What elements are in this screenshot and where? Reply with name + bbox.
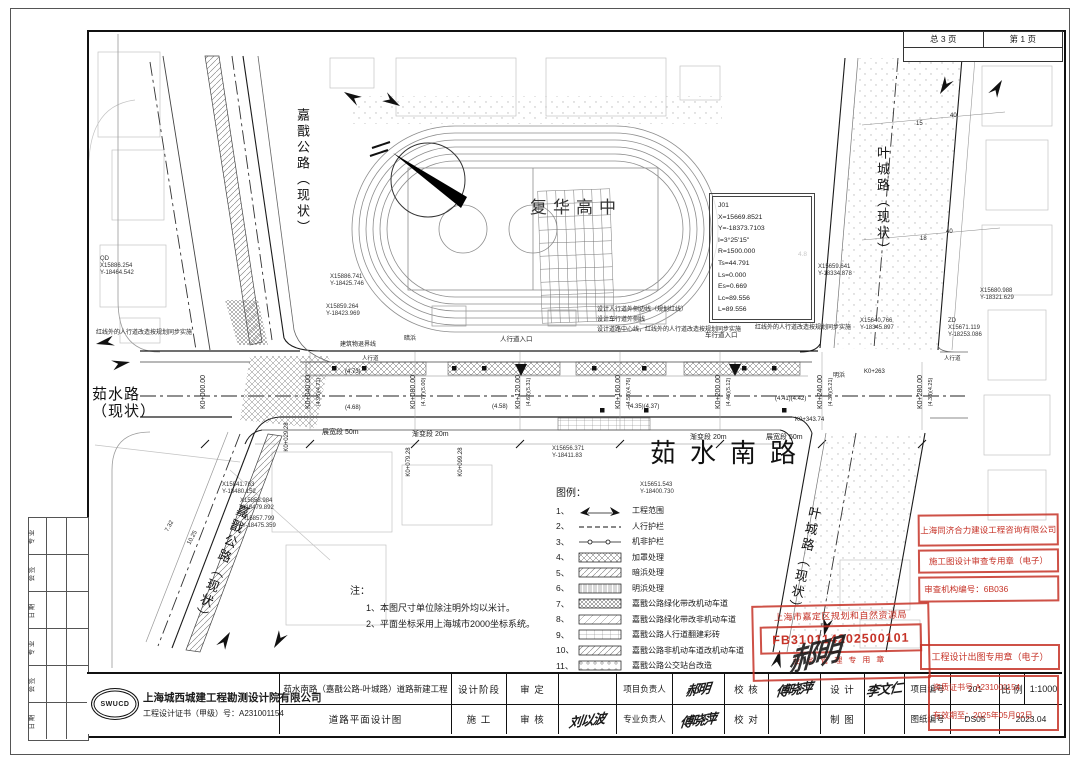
yecheng-road-top — [800, 58, 1005, 418]
legend-label: 嘉戬公路绿化带改非机动车道 — [632, 614, 736, 625]
signoff-label-cell: 日 期 — [29, 703, 47, 739]
sheet-total: 总 3 页 — [904, 32, 984, 47]
signoff-cell — [47, 703, 67, 739]
signoff-label: 日 期 — [25, 715, 35, 730]
road-label-yecheng-top: 叶城路（现状） — [876, 146, 889, 258]
bike-to-lane-swatch — [578, 645, 622, 656]
svg-text:明浜: 明浜 — [833, 371, 845, 379]
legend-label: 嘉戬公路非机动车道改机动车道 — [632, 645, 744, 656]
stage-label: 设计阶段 — [452, 674, 506, 704]
vehicle-rail-swatch-icon — [578, 536, 622, 547]
zyfzr-label: 专业负责人 — [617, 704, 672, 734]
legend-item: 2、人行护栏 — [556, 519, 744, 535]
legend-no: 8、 — [556, 613, 578, 625]
svg-text:人行道: 人行道 — [944, 354, 961, 362]
svg-text:(4.33)(4.25): (4.33)(4.25) — [928, 377, 934, 406]
legend-item: 4、加罩处理 — [556, 550, 744, 566]
signature: 郝明 — [685, 678, 711, 700]
svg-text:K0+040.00: K0+040.00 — [305, 375, 312, 409]
road-label-jiajian-top: 嘉戬公路（现状） — [296, 108, 309, 236]
svg-text:18: 18 — [920, 236, 927, 242]
curve-l: L=89.556 — [718, 304, 806, 316]
curve-x: X=15669.8521 — [718, 212, 806, 224]
check-sig-column: 傅晓萍 — [768, 674, 820, 734]
svg-text:(4.68): (4.68) — [345, 405, 361, 411]
legend-item: 7、嘉戬公路绿化带改机动车道 — [556, 596, 744, 612]
svg-text:建筑物退界线: 建筑物退界线 — [340, 340, 376, 348]
signoff-cell — [67, 629, 88, 665]
legend-label: 暗浜处理 — [632, 567, 664, 578]
signoff-label: 日 期 — [25, 604, 35, 619]
drawing-title: 道路平面设计图 — [280, 704, 451, 734]
svg-text:(4.96)(4.71): (4.96)(4.71) — [316, 377, 322, 406]
svg-text:红线外的人行道改造按规划同步实施: 红线外的人行道改造按规划同步实施 — [755, 323, 851, 331]
road-label-rushui-line1: 茹水路 — [92, 386, 156, 403]
curve-es: Es=0.669 — [718, 281, 806, 293]
legend-no: 6、 — [556, 582, 578, 594]
cert-stamp: 资质证书号 A231001154 有效期至：2025年05月02日 — [928, 675, 1059, 731]
legend: 图例： 1、工程范围 2、人行护栏 3、机非护栏 4、加罩处理 5、暗浜处理 6… — [556, 484, 744, 674]
svg-text:渐变段 20m: 渐变段 20m — [690, 432, 727, 441]
legend-no: 7、 — [556, 598, 578, 610]
main-road-name: 茹水南路 — [650, 438, 810, 468]
signoff-row: 会 签 — [29, 666, 88, 703]
jiajian-road-bottom — [146, 432, 282, 652]
svg-text:(4.77)(5.00): (4.77)(5.00) — [421, 377, 427, 406]
signoff-strip: 专 业 会 签 日 期 专 业 会 签 日 期 — [28, 517, 89, 741]
svg-text:展宽段 50m: 展宽段 50m — [766, 432, 803, 441]
signature: 刘以波 — [568, 708, 606, 732]
svg-text:K0+000.00: K0+000.00 — [200, 375, 207, 409]
project-name: 茹水南路（嘉戬公路-叶城路）道路新建工程 — [280, 674, 451, 704]
curve-i: I=3°25'15" — [718, 235, 806, 247]
svg-text:15: 15 — [916, 121, 923, 127]
svg-text:(4.39)(5.21): (4.39)(5.21) — [828, 377, 834, 406]
cover-treatment-swatch — [578, 552, 622, 563]
legend-no: 5、 — [556, 567, 578, 579]
svg-text:X15859.264Y-18423.969: X15859.264Y-18423.969 — [326, 304, 360, 317]
sheet-number: 第 1 页 — [984, 32, 1063, 47]
svg-text:X15841.763Y-18480.152: X15841.763Y-18480.152 — [222, 482, 256, 495]
zhitu-signature — [865, 704, 904, 734]
signoff-cell — [47, 629, 67, 665]
shending-label: 审 定 — [507, 674, 558, 704]
signoff-cell — [67, 555, 88, 591]
shending-signature — [559, 674, 616, 704]
signoff-label-cell: 会 签 — [29, 555, 47, 591]
zhitu-label: 制 图 — [821, 704, 864, 734]
svg-text:K0+263: K0+263 — [864, 369, 886, 375]
cert-validity: 有效期至：2025年05月02日 — [933, 710, 1033, 721]
design-label-column: 设 计 制 图 — [820, 674, 864, 734]
green-to-lane-swatch — [578, 598, 622, 609]
svg-text:人行道入口: 人行道入口 — [500, 334, 533, 343]
legend-item: 5、暗浜处理 — [556, 565, 744, 581]
legend-no: 4、 — [556, 551, 578, 563]
shenhe-signature: 刘以波 — [559, 704, 616, 734]
zyfzr-signature: 傅晓萍 — [673, 704, 724, 734]
signoff-cell — [47, 666, 67, 702]
signoff-cell — [67, 666, 88, 702]
signoff-label-cell: 专 业 — [29, 518, 47, 554]
approve-sig-column: 刘以波 — [558, 674, 616, 734]
company-cell: SWUCD 上海城西城建工程勘测设计院有限公司 工程设计证书（甲级）号：A231… — [87, 674, 279, 734]
svg-text:K0+079.28: K0+079.28 — [406, 447, 412, 477]
legend-item: 8、嘉戬公路绿化带改非机动车道 — [556, 612, 744, 628]
legend-no: 10、 — [556, 644, 578, 656]
open-creek-swatch — [578, 583, 622, 594]
legend-label: 嘉戬公路公交站台改造 — [632, 660, 712, 671]
page-number-row: 总 3 页 第 1 页 — [904, 32, 1062, 48]
curve-y: Y=-18373.7103 — [718, 223, 806, 235]
legend-item: 10、嘉戬公路非机动车道改机动车道 — [556, 643, 744, 659]
svg-text:设计车行道外侧线: 设计车行道外侧线 — [597, 315, 645, 323]
curve-id: J01 — [718, 200, 806, 212]
notes-title: 注： — [350, 584, 535, 600]
sidewalk-brick-swatch — [578, 629, 622, 640]
review-number-stamp: 审查机构编号：6B036 — [918, 575, 1059, 602]
svg-text:K0+200.00: K0+200.00 — [715, 375, 722, 409]
signoff-label: 会 签 — [25, 678, 35, 693]
svg-text:K0+099.28: K0+099.28 — [458, 447, 464, 477]
svg-text:X15656.371Y-18411.83: X15656.371Y-18411.83 — [552, 446, 585, 459]
legend-item: 9、嘉戬公路人行道翻建彩砖 — [556, 627, 744, 643]
stage-column: 设计阶段 施 工 — [451, 674, 506, 734]
curve-ls: Ls=0.000 — [718, 270, 806, 282]
hidden-creek-swatch — [578, 567, 622, 578]
bureau-name: 上海市嘉定区规划和自然资源局 — [753, 607, 927, 624]
note-line: 1、本图尺寸单位除注明外均以米计。 — [366, 600, 535, 616]
svg-text:(4.73): (4.73) — [345, 369, 361, 375]
svg-text:X15680.988Y-18321.629: X15680.988Y-18321.629 — [980, 288, 1014, 301]
xiaodui-label: 校 对 — [725, 704, 768, 734]
svg-text:QDX15886.254Y-18464.542: QDX15886.254Y-18464.542 — [100, 256, 134, 276]
svg-text:40: 40 — [946, 229, 953, 235]
north-arrow-icon — [370, 142, 467, 217]
svg-text:K0+240.00: K0+240.00 — [817, 375, 824, 409]
legend-item: 6、明浜处理 — [556, 581, 744, 597]
svg-text:K0+120.00: K0+120.00 — [515, 375, 522, 409]
signoff-row: 专 业 — [29, 629, 88, 666]
svg-text:(4.35)(4.37): (4.35)(4.37) — [628, 404, 659, 410]
legend-title: 图例： — [556, 484, 744, 499]
svg-text:ZDX15671.119Y-18253.086: ZDX15671.119Y-18253.086 — [948, 318, 982, 338]
svg-text:K0+160.00: K0+160.00 — [615, 375, 622, 409]
leader-label-column: 项目负责人 专业负责人 — [616, 674, 672, 734]
legend-label: 嘉戬公路人行道翻建彩砖 — [632, 629, 720, 640]
legend-label: 加罩处理 — [632, 552, 664, 563]
review-stamp-group: 上海同济合力建设工程咨询有限公司 施工图设计审查专用章（电子） 审查机构编号：6… — [918, 513, 1060, 605]
legend-label: 机非护栏 — [632, 536, 664, 547]
company-column: SWUCD 上海城西城建工程勘测设计院有限公司 工程设计证书（甲级）号：A231… — [87, 674, 279, 734]
legend-label: 明浜处理 — [632, 583, 664, 594]
company-logo: SWUCD — [91, 688, 139, 720]
project-column: 茹水南路（嘉戬公路-叶城路）道路新建工程 道路平面设计图 — [279, 674, 451, 734]
svg-text:红线外的人行道改造按规划同步实施: 红线外的人行道改造按规划同步实施 — [96, 328, 192, 336]
svg-text:渐变段 20m: 渐变段 20m — [412, 429, 449, 438]
svg-text:X15886.741Y-18425.746: X15886.741Y-18425.746 — [330, 274, 364, 287]
approve-label-column: 审 定 审 核 — [506, 674, 558, 734]
check-label-column: 校 核 校 对 — [724, 674, 768, 734]
signoff-row: 专 业 — [29, 518, 88, 555]
svg-text:设计道路中心线，红线外的人行道改造按规划同步实施: 设计道路中心线，红线外的人行道改造按规划同步实施 — [597, 325, 741, 333]
signoff-row: 日 期 — [29, 703, 88, 739]
signoff-label: 专 业 — [25, 530, 35, 545]
svg-text:人行道: 人行道 — [362, 354, 379, 362]
svg-text:K0+029.28: K0+029.28 — [284, 422, 290, 452]
signoff-cell — [67, 592, 88, 628]
svg-text:设计人行道外侧边线（规划红线）: 设计人行道外侧边线（规划红线） — [597, 305, 687, 313]
svg-text:(4.41)(4.42): (4.41)(4.42) — [775, 396, 806, 402]
page-number-box: 总 3 页 第 1 页 — [903, 31, 1063, 62]
bus-stop-swatch — [578, 660, 622, 671]
signoff-label-cell: 专 业 — [29, 629, 47, 665]
svg-text:(4.58): (4.58) — [492, 404, 508, 410]
svg-text:(4.53)(4.76): (4.53)(4.76) — [626, 377, 632, 406]
legend-label: 工程范围 — [632, 505, 664, 516]
signoff-cell — [47, 592, 67, 628]
svg-text:X15659.641Y-18334.878: X15659.641Y-18334.878 — [818, 264, 852, 277]
signoff-label-cell: 会 签 — [29, 666, 47, 702]
svg-text:展宽段 50m: 展宽段 50m — [322, 427, 359, 436]
svg-text:40: 40 — [950, 113, 957, 119]
curve-ts: Ts=44.791 — [718, 258, 806, 270]
road-label-rushui: 茹水路 （现状） — [92, 386, 156, 421]
note-line: 2、平面坐标采用上海城市2000坐标系统。 — [366, 616, 535, 632]
signoff-row: 会 签 — [29, 555, 88, 592]
svg-text:K0+080.00: K0+080.00 — [410, 375, 417, 409]
legend-no: 1、 — [556, 505, 578, 517]
legend-item: 1、工程范围 — [556, 503, 744, 519]
road-label-rushui-line2: （现状） — [92, 403, 156, 420]
xmfzr-label: 项目负责人 — [617, 674, 672, 704]
project-range-swatch-icon — [578, 505, 622, 516]
green-stipple-top — [352, 96, 722, 124]
legend-label: 嘉戬公路绿化带改机动车道 — [632, 598, 728, 609]
svg-text:暗浜: 暗浜 — [404, 334, 416, 342]
legend-no: 9、 — [556, 629, 578, 641]
signoff-cell — [67, 703, 88, 739]
school-running-track — [352, 126, 718, 332]
xmfzr-signature: 郝明 — [673, 674, 724, 704]
signature: 傅晓萍 — [679, 708, 717, 732]
notes: 注： 1、本图尺寸单位除注明外均以米计。 2、平面坐标采用上海城市2000坐标系… — [350, 584, 535, 632]
bureau-number: FB310114202500101 — [760, 623, 923, 654]
signoff-cell — [47, 555, 67, 591]
output-seal-stamp: 工程设计出图专用章（电子） — [920, 644, 1060, 670]
review-company-stamp: 上海同济合力建设工程咨询有限公司 — [918, 513, 1059, 546]
legend-no: 3、 — [556, 536, 578, 548]
svg-text:10.25: 10.25 — [186, 529, 199, 546]
title-block: SWUCD 上海城西城建工程勘测设计院有限公司 工程设计证书（甲级）号：A231… — [87, 672, 1062, 734]
shenhe-label: 审 核 — [507, 704, 558, 734]
pedestrian-rail-swatch-icon — [578, 521, 622, 532]
svg-text:(4.62)(5.31): (4.62)(5.31) — [526, 377, 532, 406]
green-to-bike-lane-swatch — [578, 614, 622, 625]
signoff-label: 专 业 — [25, 641, 35, 656]
xiaodui-signature — [769, 704, 820, 734]
svg-text:K0+343.74: K0+343.74 — [795, 417, 825, 423]
legend-item: 3、机非护栏 — [556, 534, 744, 550]
signoff-label: 会 签 — [25, 567, 35, 582]
leader-sig-column: 郝明 傅晓萍 — [672, 674, 724, 734]
review-seal-stamp: 施工图设计审查专用章（电子） — [918, 548, 1059, 573]
cert-number: 资质证书号 A231001154 — [933, 682, 1020, 693]
svg-text:7.32: 7.32 — [164, 519, 175, 533]
signoff-cell — [67, 518, 88, 554]
bureau-seal-text: 业务管理专用章 — [754, 653, 928, 668]
bureau-stamp: 上海市嘉定区规划和自然资源局 FB310114202500101 业务管理专用章 — [751, 602, 931, 682]
legend-label: 人行护栏 — [632, 521, 664, 532]
legend-no: 11、 — [556, 660, 578, 672]
signoff-row: 日 期 — [29, 592, 88, 629]
design-sig-column: 李文仁 — [864, 674, 904, 734]
signature: 李文仁 — [865, 677, 903, 701]
svg-text:(4.46)(5.12): (4.46)(5.12) — [726, 377, 732, 406]
signoff-cell — [47, 518, 67, 554]
school-name: 复华高中 — [530, 198, 622, 217]
svg-text:K0+280.00: K0+280.00 — [917, 375, 924, 409]
curve-lc: Lc=89.556 — [718, 293, 806, 305]
signoff-label-cell: 日 期 — [29, 592, 47, 628]
stage-value: 施 工 — [452, 704, 506, 734]
legend-no: 2、 — [556, 520, 578, 532]
svg-text:X15640.766Y-18345.897: X15640.766Y-18345.897 — [860, 318, 894, 331]
curve-data-box: J01 X=15669.8521 Y=-18373.7103 I=3°25'15… — [712, 196, 812, 320]
curve-r: R=1500.000 — [718, 246, 806, 258]
